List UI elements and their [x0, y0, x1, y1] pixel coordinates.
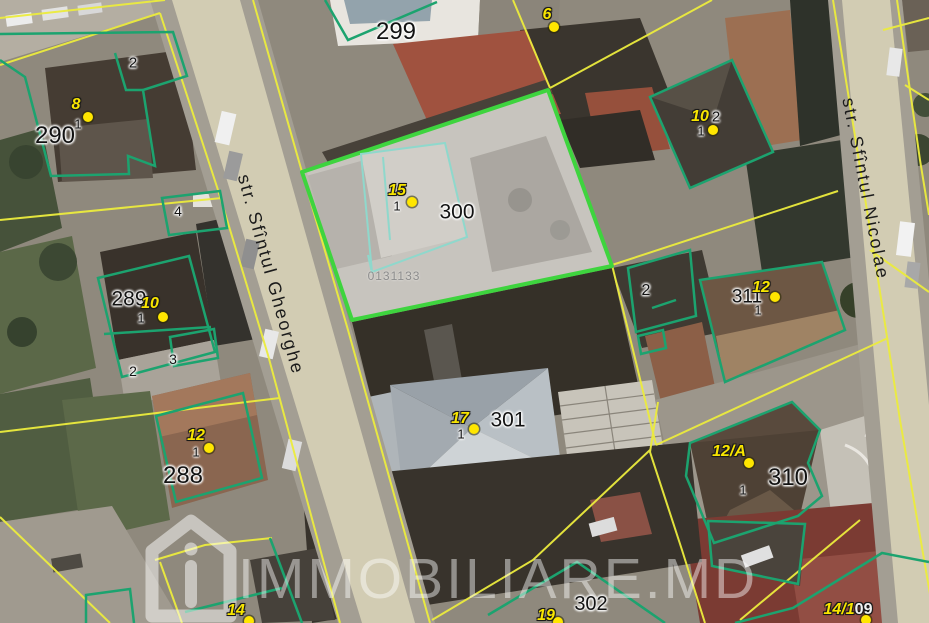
marker-dot[interactable]	[469, 424, 479, 434]
house-number-marker[interactable]: 8	[72, 97, 81, 113]
parcel-number-label: 3	[169, 352, 177, 366]
unit-number-label: 1	[754, 304, 761, 317]
watermark-text: IMMOBILIARE.MD	[238, 547, 758, 611]
unit-number-label: 1	[697, 125, 704, 138]
house-number-marker[interactable]: 15	[388, 183, 406, 199]
marker-dot[interactable]	[158, 312, 168, 322]
house-number-marker[interactable]: 12	[187, 428, 205, 444]
unit-number-label: 1	[457, 428, 464, 441]
parcel-number-label: 2	[129, 364, 137, 378]
house-number-marker[interactable]: 10	[691, 109, 709, 125]
parcel-number-label: 290	[35, 124, 75, 148]
parcel-number-label: 302	[574, 594, 607, 614]
marker-dot[interactable]	[204, 443, 214, 453]
marker-dot[interactable]	[549, 22, 559, 32]
unit-number-label: 1	[393, 200, 400, 213]
marker-dot[interactable]	[83, 112, 93, 122]
parcel-number-label: 310	[768, 466, 808, 490]
parcel-number-label: 2	[642, 283, 651, 299]
parcel-number-label: 299	[376, 20, 416, 44]
parcel-number-label: 2	[129, 56, 137, 71]
parcel-number-label: 301	[490, 410, 525, 431]
parcel-number-label: 300	[439, 202, 474, 223]
cadastral-code-label: 0131133	[368, 270, 421, 282]
marker-dot[interactable]	[744, 458, 754, 468]
unit-number-label: 1	[137, 312, 144, 325]
unit-number-label: 1	[74, 118, 81, 131]
marker-dot[interactable]	[407, 197, 417, 207]
unit-number-label: 1	[739, 484, 746, 497]
parcel-number-label: 288	[163, 464, 203, 488]
unit-number-label: 1	[192, 446, 199, 459]
house-number-marker[interactable]: 14	[227, 603, 245, 619]
map-viewport[interactable]: IMMOBILIARE.MD str. Sfîntul Gheorghe str…	[0, 0, 929, 623]
marker-dot[interactable]	[770, 292, 780, 302]
marker-dot[interactable]	[553, 617, 563, 623]
house-number-marker[interactable]: 12	[752, 280, 770, 296]
house-number-marker[interactable]: 10	[141, 296, 159, 312]
parcel-number-label: 2	[712, 110, 720, 125]
parcel-number-label: 4	[174, 204, 182, 218]
marker-dot[interactable]	[708, 125, 718, 135]
marker-dot[interactable]	[861, 615, 871, 623]
marker-dot[interactable]	[244, 616, 254, 623]
house-number-marker[interactable]: 6	[543, 7, 552, 23]
house-number-marker[interactable]: 17	[451, 411, 469, 427]
house-number-marker[interactable]: 12/A	[712, 444, 746, 460]
